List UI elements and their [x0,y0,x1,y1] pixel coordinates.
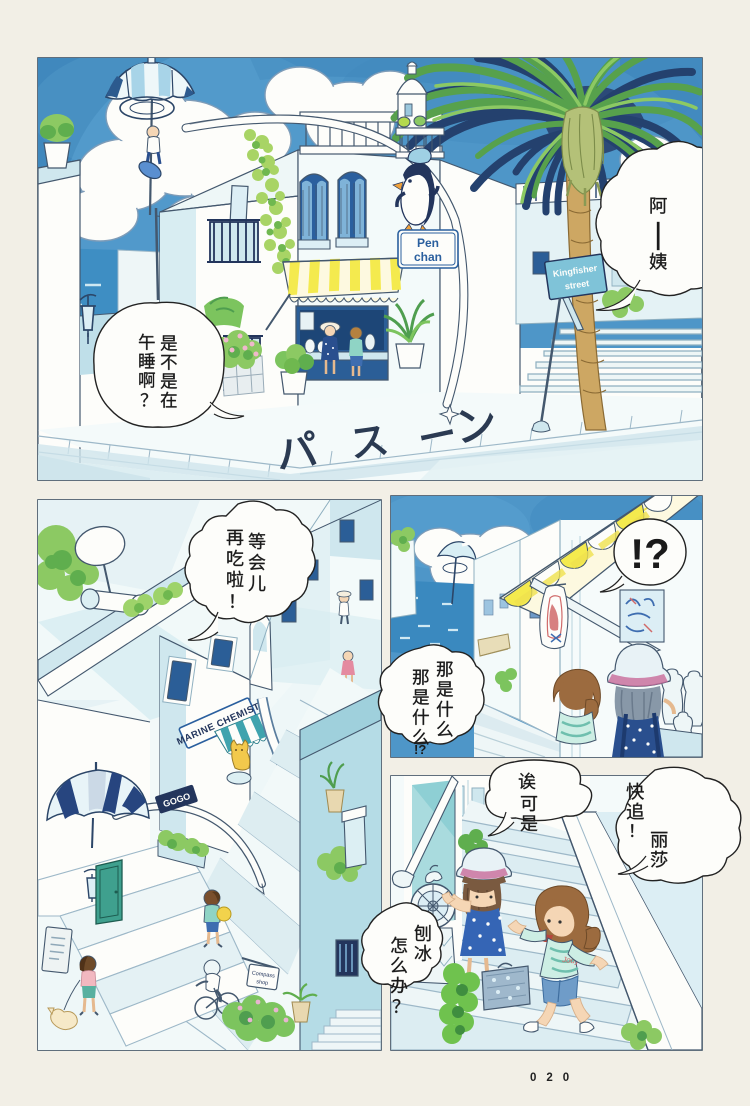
svg-text:020: 020 [530,1072,579,1084]
svg-text:!?: !? [630,530,670,577]
svg-text:!?: !? [414,742,426,757]
svg-text:Pen: Pen [417,236,439,250]
svg-text:chan: chan [414,250,442,264]
